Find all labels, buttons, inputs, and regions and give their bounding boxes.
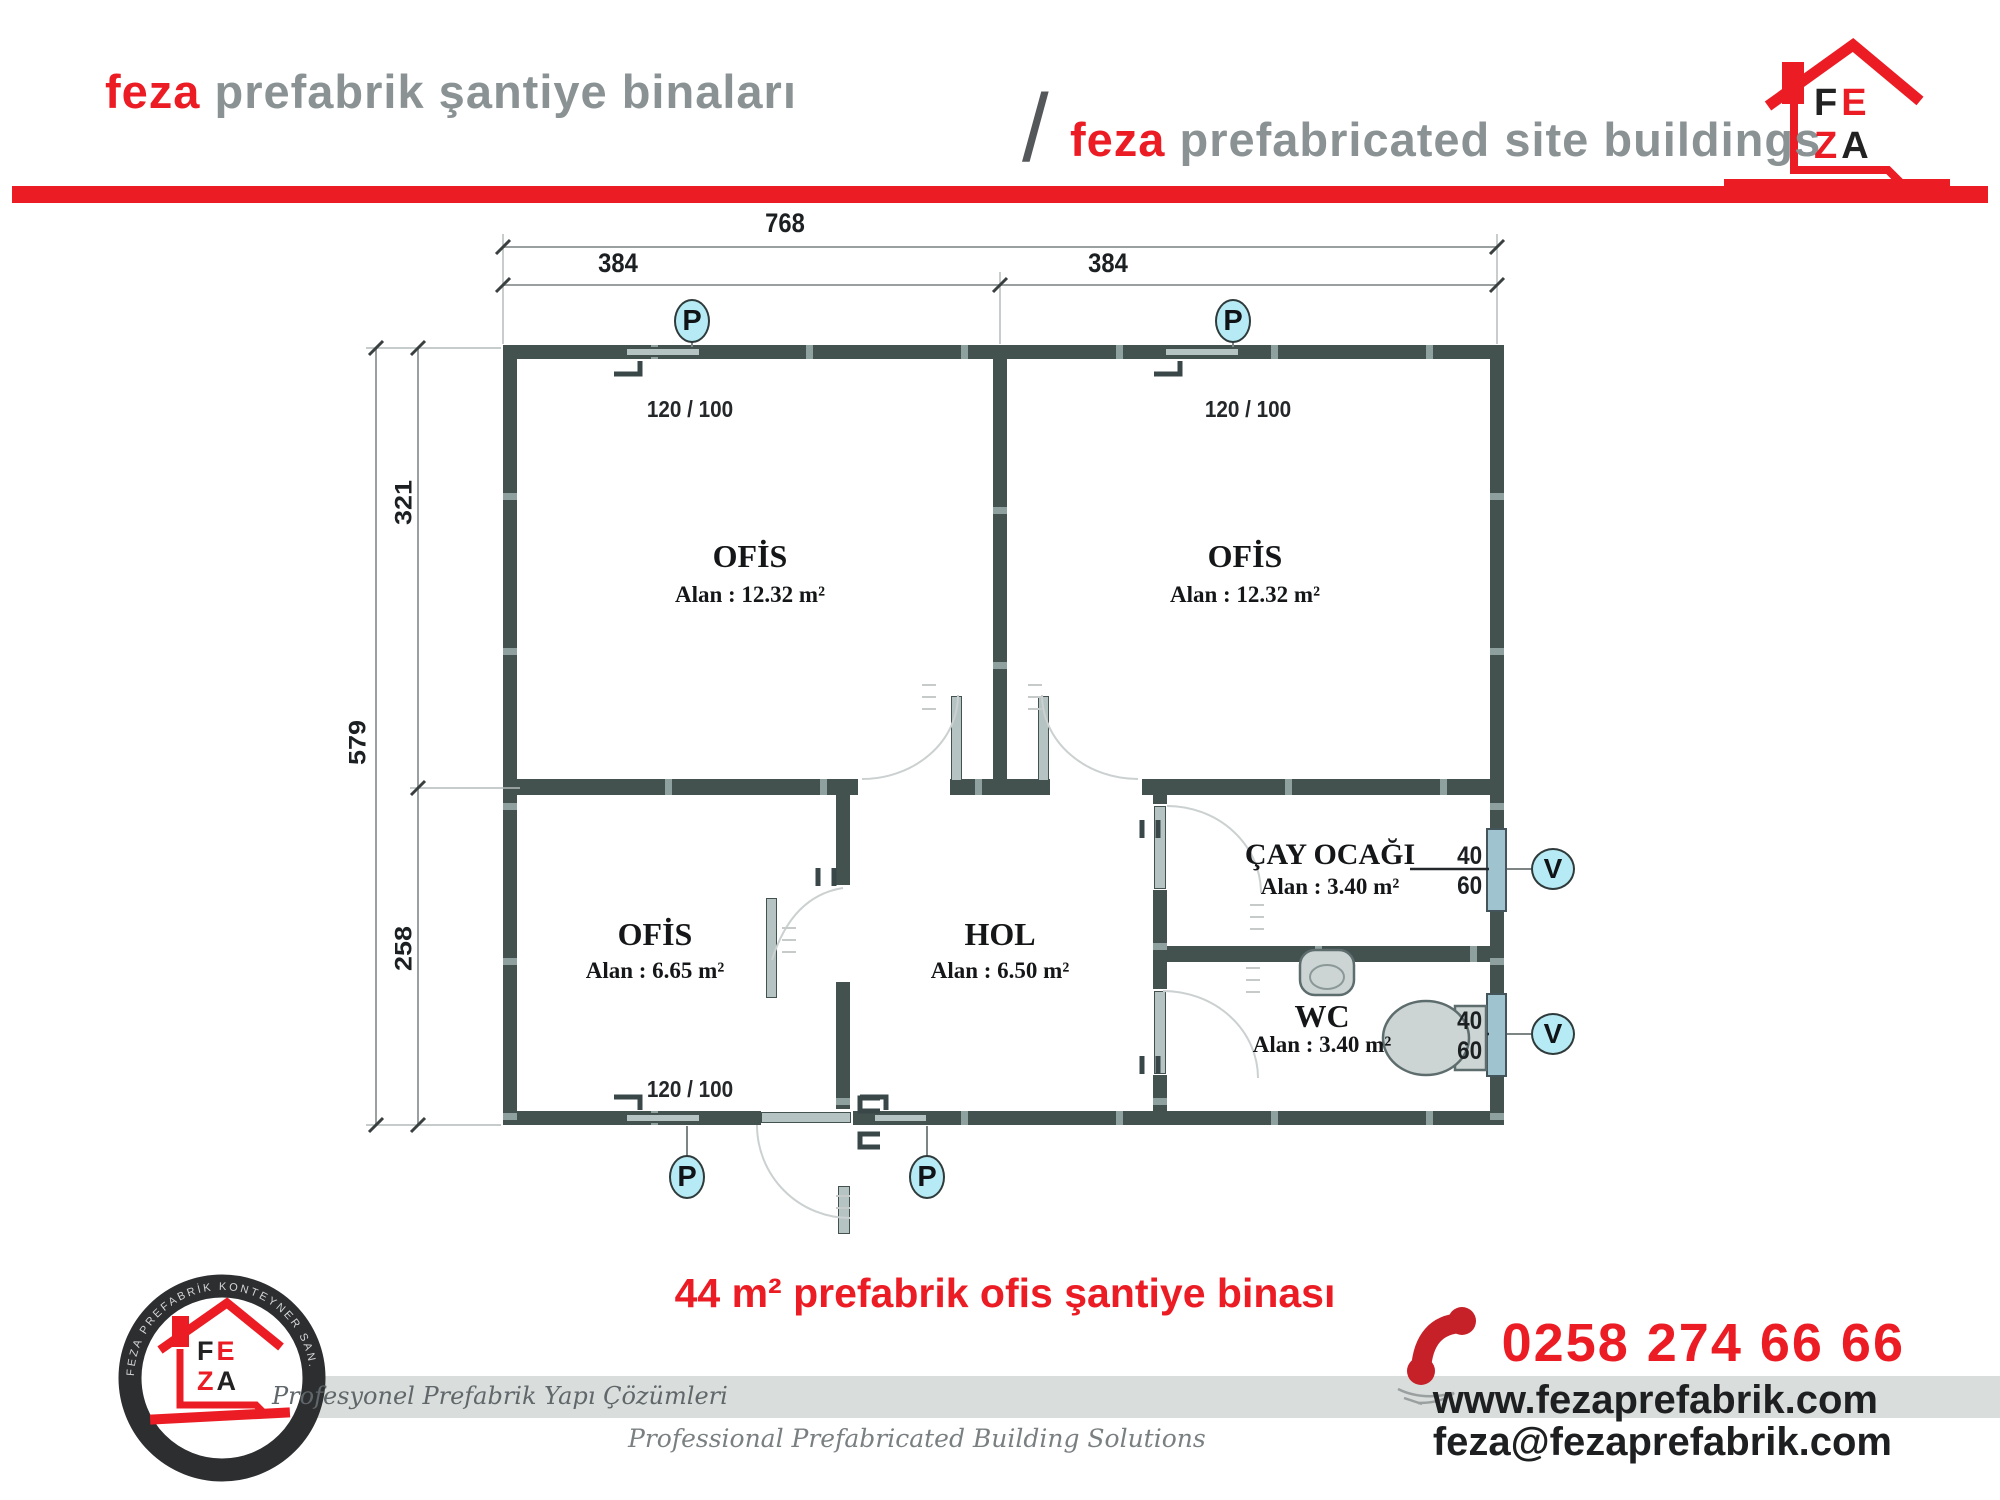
marker-p-top-left: P [674, 299, 710, 343]
marker-p-top-right: P [1215, 299, 1251, 343]
room-hall-name: HOL [850, 916, 1150, 953]
footer-tagline-turkish: Profesyonel Prefabrik Yapı Çözümleri [272, 1382, 728, 1410]
window-label-tea-60: 60 [1412, 872, 1482, 901]
footer-logo-letter-f: F [197, 1336, 217, 1366]
room-office-tl-name: OFİS [600, 538, 900, 575]
dim-total-height: 579 [344, 683, 371, 803]
logo-text-feza-top: FE ZA [1814, 82, 1873, 168]
room-office-bl-name: OFİS [505, 916, 805, 953]
room-office-tr-area: Alan : 12.32 m² [1095, 582, 1395, 608]
window-label-top-left: 120 / 100 [618, 396, 762, 423]
header-slash: / [1022, 74, 1049, 184]
footer-website[interactable]: www.fezaprefabrik.com [1433, 1378, 1878, 1423]
dim-left-width: 384 [565, 248, 671, 279]
footer-phone: 0258 274 66 66 [1502, 1312, 1905, 1374]
window-label-top-right: 120 / 100 [1176, 396, 1320, 423]
footer-tagline-english: Professional Prefabricated Building Solu… [628, 1424, 1206, 1453]
header-title-en-text: prefabricated site buildings [1165, 113, 1821, 166]
logo-letter-f: F [1814, 82, 1841, 124]
header-title-tr-text: prefabrik şantiye binaları [200, 65, 796, 118]
marker-p-bottom-right: P [909, 1155, 945, 1199]
marker-p-bottom-left: P [669, 1155, 705, 1199]
plan-caption: 44 m² prefabrik ofis şantiye binası [500, 1270, 1510, 1317]
dim-total-width: 768 [732, 208, 838, 239]
marker-v-tea: V [1531, 848, 1575, 890]
footer-logo-letter-a: A [217, 1366, 240, 1396]
logo-letter-a: A [1841, 125, 1872, 167]
room-office-tr-name: OFİS [1095, 538, 1395, 575]
header-title-english: feza prefabricated site buildings [1070, 112, 1821, 167]
room-office-tl-area: Alan : 12.32 m² [600, 582, 900, 608]
window-label-tea-40: 40 [1412, 842, 1482, 871]
footer-logo-ring-text: FEZA PREFABRİK KONTEYNER SAN. TİC. LTD. … [0, 0, 319, 1376]
footer-email[interactable]: feza@fezaprefabrik.com [1433, 1420, 1892, 1465]
footer-logo-letter-e: E [217, 1336, 238, 1366]
dim-bottom-height: 258 [390, 889, 417, 1009]
logo-letter-z: Z [1814, 125, 1841, 167]
footer-logo-text-feza: FE ZA [197, 1337, 239, 1396]
brand-feza-en: feza [1070, 113, 1165, 166]
room-hall-area: Alan : 6.50 m² [850, 958, 1150, 984]
footer-logo-ring-textpath: FEZA PREFABRİK KONTEYNER SAN. TİC. LTD. … [0, 0, 319, 1376]
room-office-bl-area: Alan : 6.65 m² [505, 958, 805, 984]
dim-right-width: 384 [1055, 248, 1161, 279]
logo-letter-e: E [1841, 82, 1870, 124]
footer-logo-letter-z: Z [197, 1366, 217, 1396]
window-label-wc-60: 60 [1412, 1037, 1482, 1066]
page: { "header": { "brand_tr": "feza", "title… [0, 0, 2000, 1500]
marker-v-wc: V [1531, 1013, 1575, 1055]
window-label-bottom: 120 / 100 [618, 1076, 762, 1103]
window-label-wc-40: 40 [1412, 1007, 1482, 1036]
header-title-turkish: feza prefabrik şantiye binaları [105, 64, 797, 119]
brand-feza-tr: feza [105, 65, 200, 118]
dim-top-height: 321 [390, 443, 417, 563]
